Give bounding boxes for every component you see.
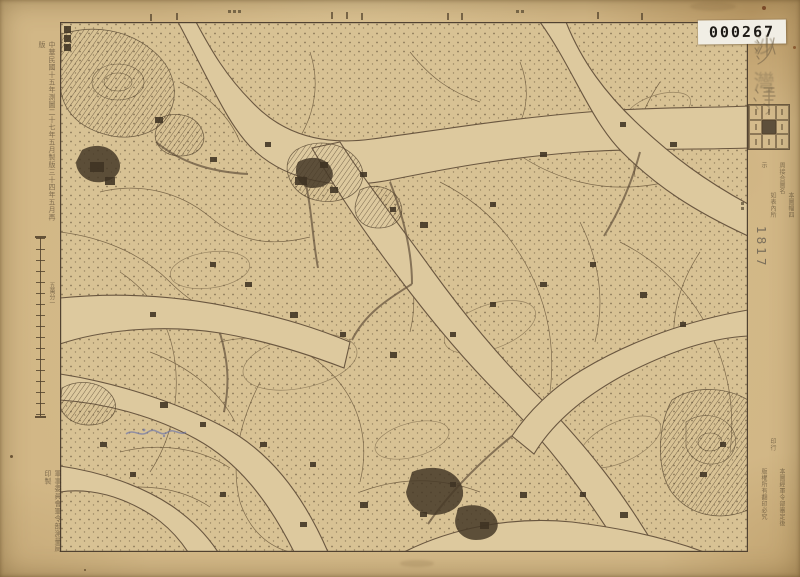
- margin-tick: [597, 12, 599, 19]
- index-cell: [762, 105, 775, 120]
- index-cell: [749, 120, 762, 135]
- index-note-col1: 本圖幅四周接合圖名: [778, 162, 794, 218]
- margin-tick: [331, 12, 333, 19]
- survey-imprint: 中華民國十五年測圖二十七年五月製版三十四年五月再版: [37, 41, 57, 223]
- right-imprint-col1: 本圖經軍令部審定後印行: [769, 438, 785, 527]
- margin-tick: [447, 13, 449, 20]
- index-cell: [762, 134, 775, 149]
- index-note-col2: 如表內所示: [760, 162, 776, 218]
- paper-smudge: [400, 560, 434, 567]
- paper-smudge: [690, 2, 736, 11]
- margin-tick: [361, 13, 363, 20]
- right-imprint-col2: 版權所有翻印必究: [760, 468, 767, 520]
- scale-label: 五萬分一: [47, 282, 56, 328]
- index-note: 本圖幅四周接合圖名 如表內所示: [752, 162, 800, 220]
- index-cell: [776, 134, 789, 149]
- paper-speck: [793, 46, 796, 49]
- micro-label-marks: [228, 10, 241, 13]
- index-cell: [776, 120, 789, 135]
- map-canvas: [60, 22, 748, 552]
- frame-edge-label-marks: [741, 202, 744, 210]
- paper-speck: [762, 6, 766, 10]
- margin-tick: [150, 14, 152, 21]
- margin-tick: [641, 13, 643, 20]
- paper-speck: [10, 455, 13, 458]
- paper-speck: [84, 569, 86, 571]
- margin-tick: [346, 12, 348, 19]
- margin-tick: [461, 13, 463, 20]
- printer-imprint: 軍事委員會軍令部測量局印製: [43, 470, 63, 556]
- scanned-map-sheet: 000267 沙灣 本圖幅四周接合圖名 如表內所示 1817 本圖經軍令部審定後…: [0, 0, 800, 577]
- index-cell: [749, 105, 762, 120]
- micro-label-marks: [516, 10, 524, 13]
- scale-bar: [34, 238, 46, 416]
- adjoining-sheet-index: [748, 104, 790, 150]
- index-cell: [749, 134, 762, 149]
- handwritten-number: 1817: [754, 226, 768, 266]
- index-cell: [776, 105, 789, 120]
- margin-tick: [176, 13, 178, 20]
- right-imprint: 本圖經軍令部審定後印行 版權所有翻印必究: [752, 438, 793, 530]
- index-cell-current-sheet: [762, 120, 775, 135]
